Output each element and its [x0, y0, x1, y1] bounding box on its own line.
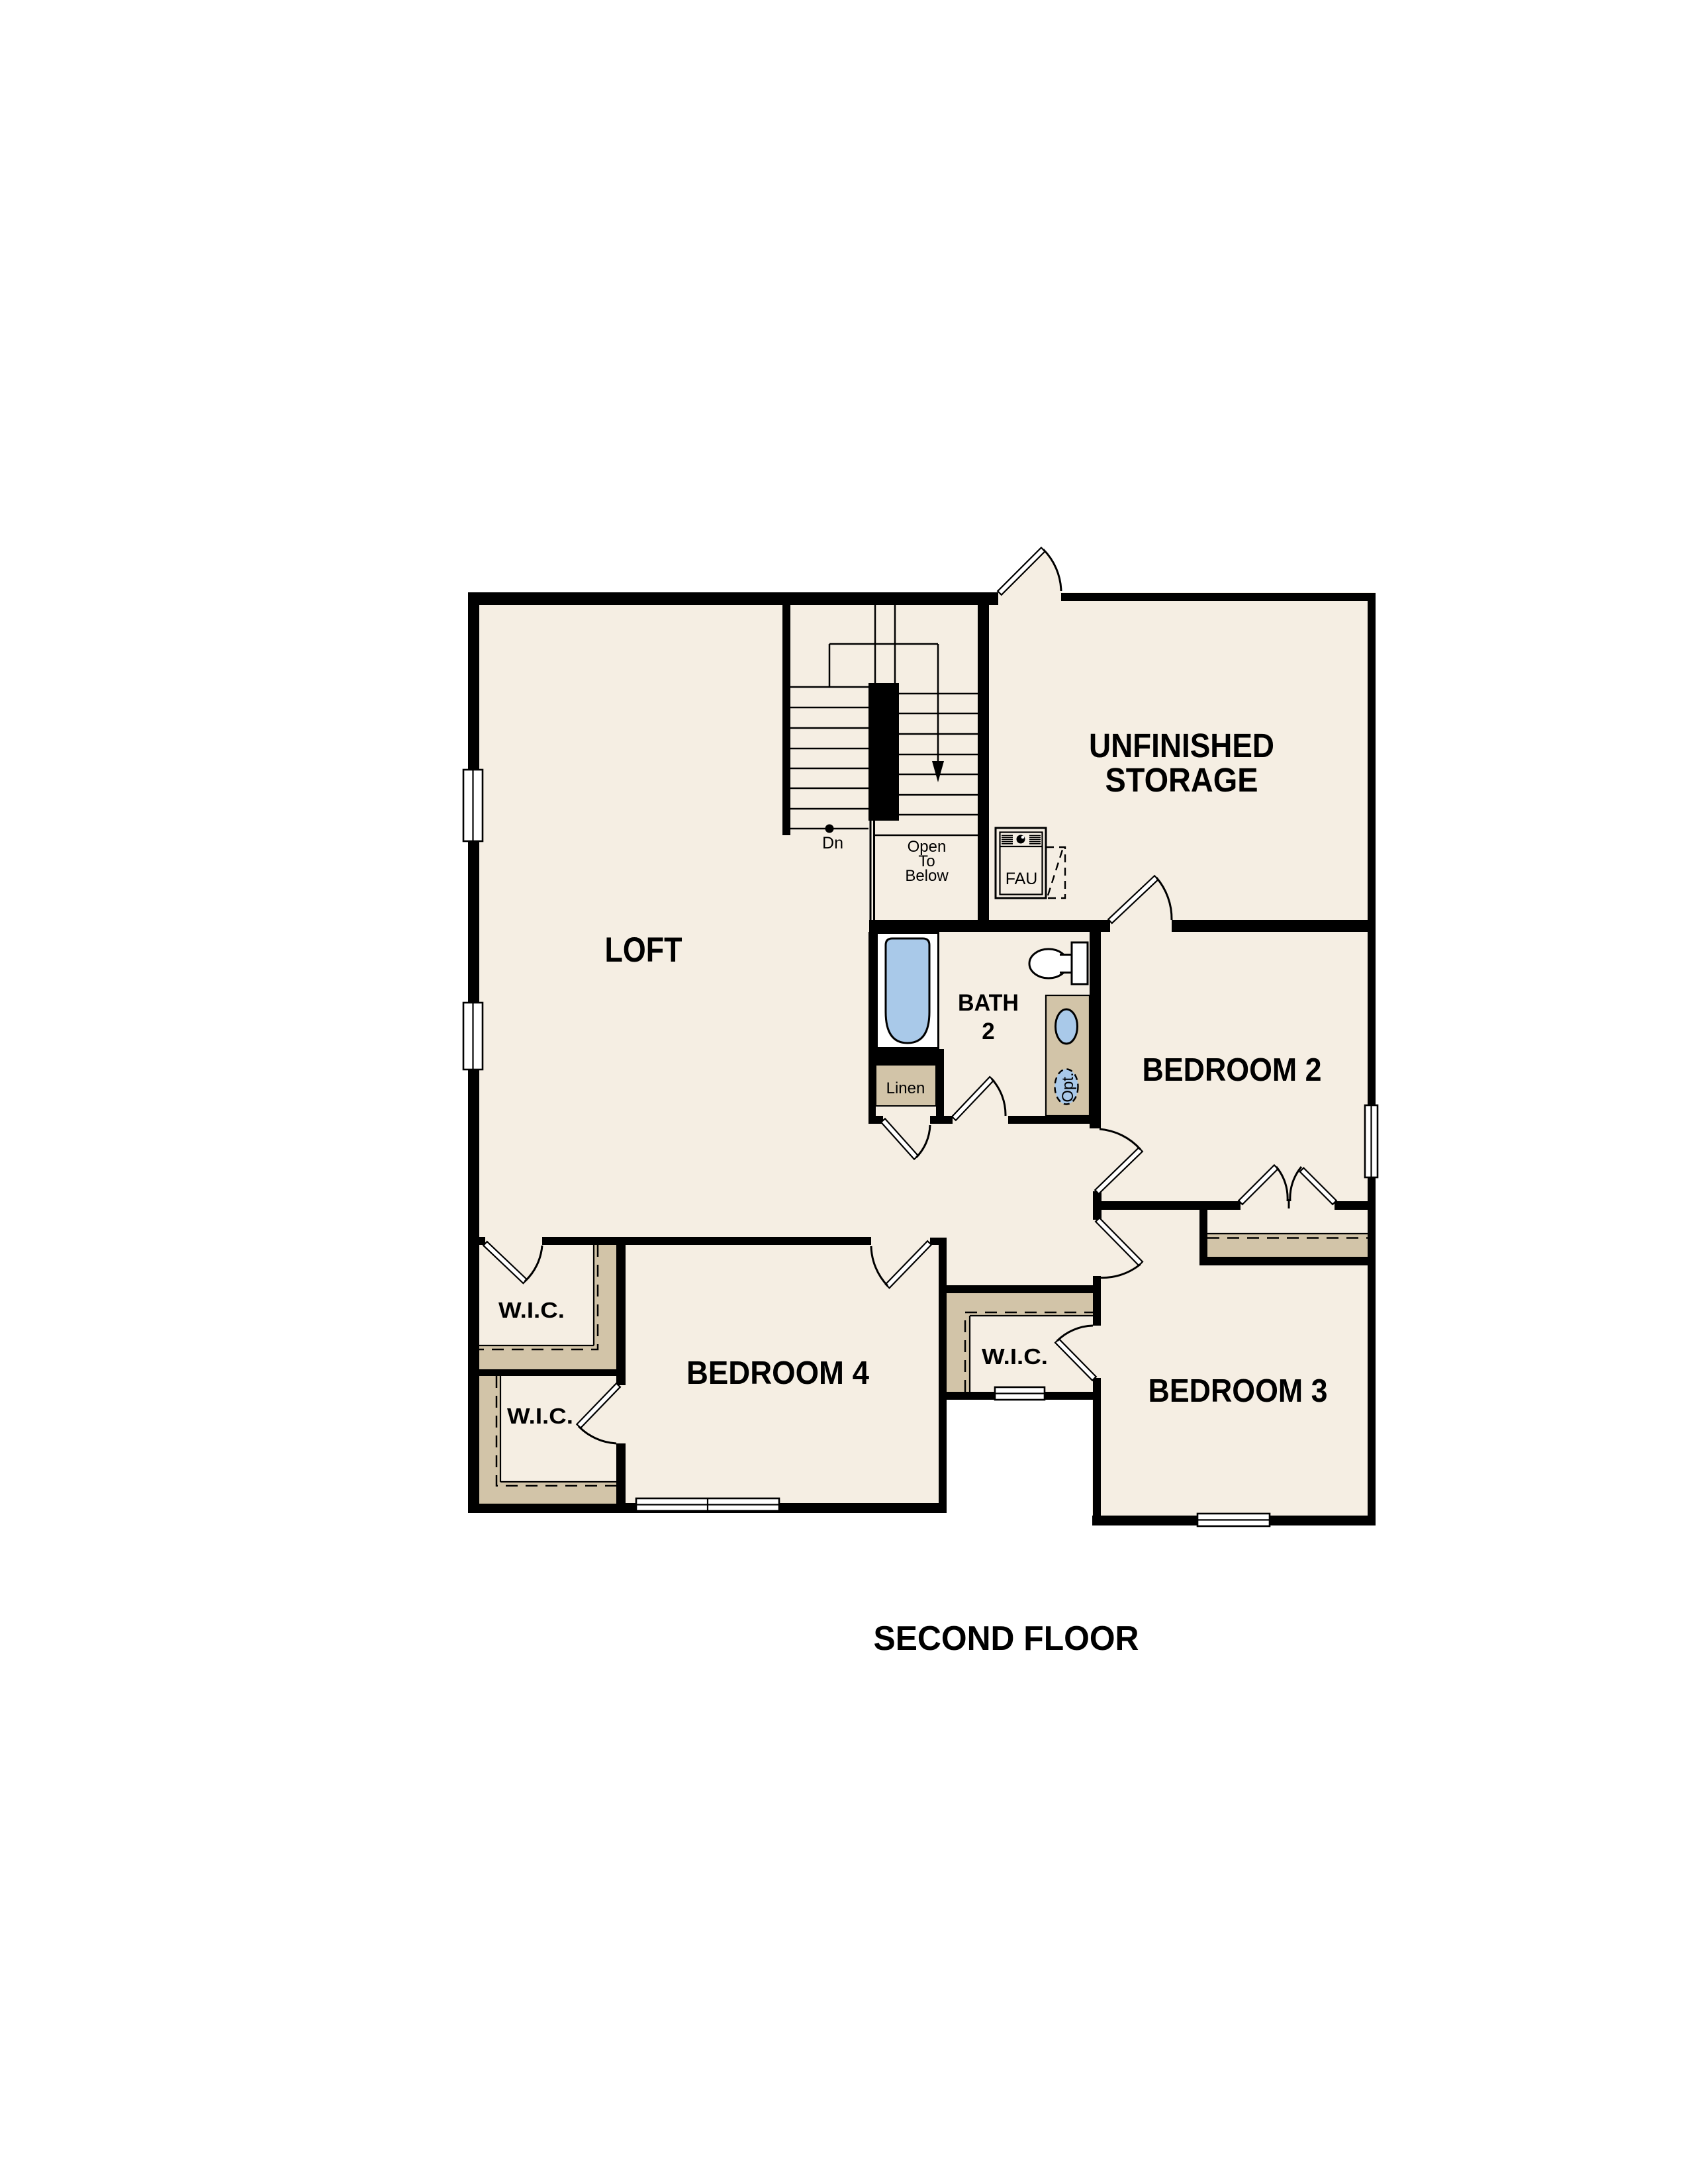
svg-text:W.I.C.: W.I.C. [498, 1298, 565, 1322]
svg-text:LOFT: LOFT [605, 931, 682, 970]
svg-text:UNFINISHED: UNFINISHED [1089, 727, 1274, 764]
svg-text:W.I.C.: W.I.C. [982, 1344, 1048, 1369]
svg-text:BEDROOM 2: BEDROOM 2 [1143, 1052, 1322, 1088]
svg-text:W.I.C.: W.I.C. [507, 1404, 573, 1428]
svg-text:STORAGE: STORAGE [1105, 761, 1258, 799]
svg-text:BATH: BATH [958, 990, 1019, 1016]
svg-text:Below: Below [905, 867, 949, 885]
svg-text:FAU: FAU [1006, 870, 1038, 888]
svg-text:SECOND FLOOR: SECOND FLOOR [874, 1619, 1139, 1658]
svg-text:BEDROOM 3: BEDROOM 3 [1149, 1373, 1328, 1409]
svg-text:Dn: Dn [822, 834, 843, 852]
svg-text:Opt.: Opt. [1059, 1072, 1077, 1102]
svg-text:2: 2 [982, 1019, 994, 1044]
svg-text:BEDROOM 4: BEDROOM 4 [686, 1355, 869, 1391]
svg-text:Linen: Linen [886, 1079, 925, 1097]
